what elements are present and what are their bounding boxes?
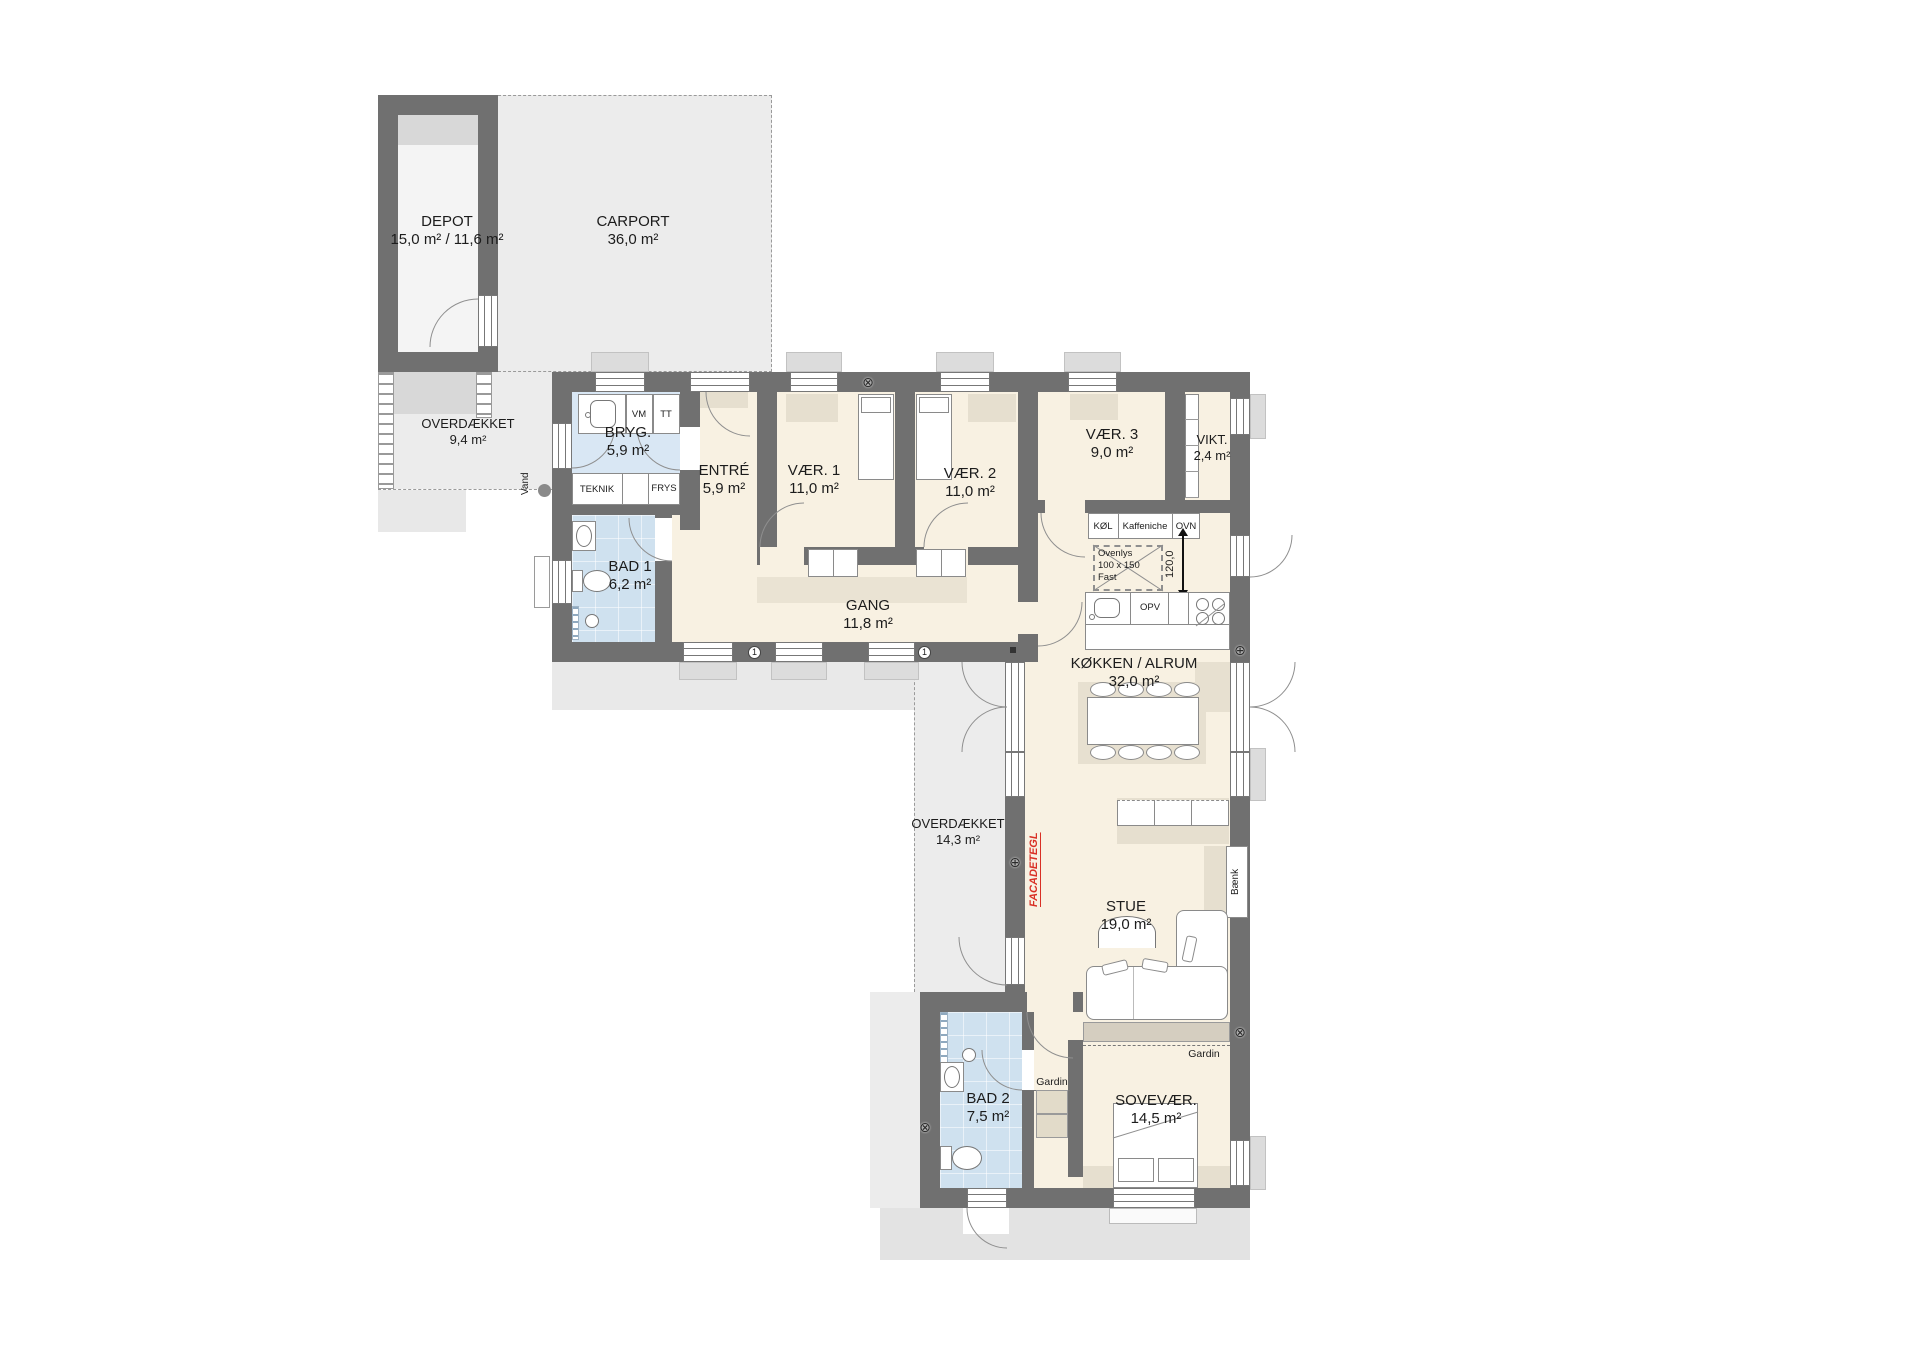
bad1-window-ledge: [534, 556, 550, 608]
overdaekket-w-name: OVERDÆKKET: [911, 816, 1004, 832]
window-vikt-e: [1230, 398, 1250, 435]
bad2-name: BAD 2: [966, 1090, 1009, 1108]
pergola-post-mid: [476, 372, 492, 418]
bryg-sink-tap: [585, 412, 591, 418]
vaer3-area: 9,0 m²: [1086, 444, 1139, 462]
koekken-name: KØKKEN / ALRUM: [1071, 655, 1198, 673]
bad2-door-arc: [982, 1050, 1022, 1090]
window-vaer2-n: [940, 372, 990, 392]
wall-bad2-west: [920, 992, 940, 1208]
sidelight-w: [1005, 752, 1025, 797]
carport-name: CARPORT: [596, 213, 669, 231]
depot-label: DEPOT 15,0 m² / 11,6 m²: [390, 213, 503, 249]
skylight-line3: Fast: [1098, 572, 1140, 584]
nook-wardrobe-2: [1036, 1114, 1068, 1138]
skylight-line1: Ovenlys: [1098, 548, 1140, 560]
window-sove-e: [1230, 1140, 1250, 1186]
depot-name: DEPOT: [390, 213, 503, 231]
facadetegl-label: FACADETEGL: [1028, 828, 1040, 912]
kaffeniche-label: Kaffeniche: [1123, 521, 1168, 532]
entre-label: ENTRÉ 5,9 m²: [699, 462, 750, 498]
depot-door-arc: [430, 299, 478, 347]
vaer3-label: VÆR. 3 9,0 m²: [1086, 426, 1139, 462]
bad1-basin: [576, 525, 592, 547]
wall-gang-koekken: [1018, 560, 1038, 602]
koekken-label: KØKKEN / ALRUM 32,0 m²: [1071, 655, 1198, 691]
cab-div-1: [1118, 513, 1119, 539]
bad2-area: 7,5 m²: [966, 1108, 1009, 1126]
entre-name: ENTRÉ: [699, 462, 750, 480]
koekken-area: 32,0 m²: [1071, 673, 1198, 691]
kitchen-sink: [1094, 598, 1120, 618]
stue-name: STUE: [1101, 898, 1152, 916]
wall-west: [552, 372, 572, 662]
stove-line: [1196, 604, 1226, 630]
gang-label: GANG 11,8 m²: [843, 597, 893, 633]
vent-symbol-north: ⊗: [862, 375, 874, 389]
window-well: [1109, 1208, 1197, 1224]
overdaekket-nw-band: [394, 372, 476, 414]
bad2-toilet-tank: [940, 1146, 952, 1170]
window-sove-s: [1113, 1188, 1195, 1208]
sideboard-d1: [1154, 800, 1155, 826]
dining-table: [1087, 697, 1199, 745]
island-v3: [1188, 592, 1189, 624]
overdaekket-nw-paving: [378, 490, 466, 532]
sove-label: SOVEVÆR. 14,5 m²: [1115, 1092, 1197, 1128]
carport-label: CARPORT 36,0 m²: [596, 213, 669, 249]
vaer1-pillow: [861, 397, 891, 413]
vaer1-label: VÆR. 1 11,0 m²: [788, 462, 841, 498]
dim-label: 120,0: [1164, 536, 1176, 592]
bryg-side-door: [552, 423, 572, 469]
bad1-toilet-bowl: [583, 570, 611, 592]
bad1-name: BAD 1: [608, 558, 651, 576]
gap-stue-nook-door: [1027, 992, 1073, 1012]
tt-label: TT: [660, 409, 672, 420]
chair-b1: [1090, 745, 1116, 760]
sideboard: [1117, 800, 1229, 826]
overdaekket-w-area-text: 14,3 m²: [911, 832, 1004, 848]
vand-label: Vand: [520, 462, 531, 506]
french-doors-w: [1005, 662, 1025, 752]
frys-label: FRYS: [651, 483, 676, 494]
overdaekket-nw-label: OVERDÆKKET 9,4 m²: [421, 416, 514, 448]
island-v1: [1130, 592, 1131, 624]
skylight-line2: 100 x 150: [1098, 560, 1140, 572]
sill-s2: [771, 662, 827, 680]
french-w-upper-arc: [962, 662, 1007, 707]
sove-pillow-1: [1118, 1158, 1154, 1182]
wall-vaer3-vikt: [1165, 392, 1185, 500]
sove-divider-cabinet: [1083, 1022, 1230, 1042]
vaer2-rug: [968, 394, 1016, 422]
bryg-name: BRYG.: [605, 424, 651, 442]
overdaekket-nw-area-text: 9,4 m²: [421, 432, 514, 448]
chair-b2: [1118, 745, 1144, 760]
sill-n4: [1064, 352, 1121, 372]
sideboard-d2: [1191, 800, 1192, 826]
dim-line: [1182, 534, 1184, 592]
stue-bench-band: [1204, 846, 1228, 918]
vikt-label: VIKT. 2,4 m²: [1194, 432, 1231, 464]
frys-divider: [648, 473, 649, 505]
gardin-label-sove: Gardin: [1188, 1048, 1220, 1060]
stue-terrace-door: [1005, 937, 1025, 985]
french-e-lower-arc: [1250, 707, 1295, 752]
window-gang-s1: [683, 642, 733, 662]
french-w-lower-arc: [962, 707, 1007, 752]
vaer2-area: 11,0 m²: [944, 483, 997, 501]
vikt-area: 2,4 m²: [1194, 448, 1231, 464]
bad1-label: BAD 1 6,2 m²: [608, 558, 651, 594]
depot-door-frame: [478, 295, 498, 347]
sofa-seam: [1133, 967, 1134, 1019]
sill-n2: [786, 352, 842, 372]
skylight-text: Ovenlys 100 x 150 Fast: [1098, 548, 1140, 584]
window-koekken-e: [1230, 752, 1250, 797]
vaer2-pillow: [919, 397, 949, 413]
vaer2-label: VÆR. 2 11,0 m²: [944, 465, 997, 501]
stue-label: STUE 19,0 m²: [1101, 898, 1152, 934]
sill-n1: [591, 352, 649, 372]
sove-pillow-2: [1158, 1158, 1194, 1182]
stue-terrace-door-arc: [959, 937, 1007, 985]
wall-vaer1-vaer2: [895, 372, 915, 547]
koekken-gang-door-arc: [1038, 602, 1082, 646]
island-v2: [1168, 592, 1169, 624]
teknik-divider: [622, 473, 623, 505]
bad2-ext-door-arc: [967, 1208, 1007, 1248]
gang-closet-1-div: [833, 549, 834, 577]
gap-vaer3-door: [1045, 500, 1085, 513]
vent-symbol-bad2: ⊗: [919, 1120, 931, 1134]
wall-end-dot: [1010, 647, 1016, 653]
window-gang-s3: [868, 642, 915, 662]
gang-closet-2-div: [941, 549, 942, 577]
vaer3-name: VÆR. 3: [1086, 426, 1139, 444]
window-bryg-n: [595, 372, 645, 392]
bad1-toilet-tank: [572, 570, 583, 592]
sove-curtain-line: [1083, 1045, 1230, 1046]
vent-symbol-stue: ⊗: [1234, 1025, 1246, 1039]
floor-plan: DEPOT 15,0 m² / 11,6 m² CARPORT 36,0 m² …: [0, 0, 1920, 1357]
bad1-shower-strip: [572, 606, 579, 640]
sill-n3: [936, 352, 994, 372]
stue-nook-door-arc: [1027, 1012, 1073, 1058]
front-door-arc: [706, 392, 750, 436]
overdaekket-w-label: OVERDÆKKET 14,3 m²: [911, 816, 1004, 848]
vaer3-rug: [1070, 394, 1118, 420]
vaer3-door-arc: [1041, 513, 1085, 557]
gap-koekken-door: [1018, 602, 1038, 634]
dim-arrow-top: [1178, 528, 1188, 536]
wall-sove-west: [1068, 1040, 1083, 1177]
baenk-label: Bænk: [1230, 854, 1241, 910]
vaer1-area: 11,0 m²: [788, 480, 841, 498]
bad2-label: BAD 2 7,5 m²: [966, 1090, 1009, 1126]
bryg-label: BRYG. 5,9 m²: [605, 424, 651, 460]
wall-mark-1a: 1: [748, 646, 761, 659]
paving-west-lowerwing: [870, 992, 920, 1208]
carport-area: 36,0 m²: [596, 231, 669, 249]
pergola-post-left: [378, 372, 394, 489]
wall-gang-koekken2: [1018, 634, 1038, 662]
vm-label: VM: [632, 409, 646, 420]
vaer1-rug: [786, 394, 838, 422]
wall-mark-1b: 1: [918, 646, 931, 659]
chair-b3: [1146, 745, 1172, 760]
french-doors-e: [1230, 662, 1250, 752]
vaer2-name: VÆR. 2: [944, 465, 997, 483]
sill-e1: [1250, 394, 1266, 439]
chair-b4: [1174, 745, 1200, 760]
teknik-label: TEKNIK: [580, 484, 614, 495]
sove-name: SOVEVÆR.: [1115, 1092, 1197, 1110]
sill-e2: [1250, 748, 1266, 801]
front-door-frame: [690, 372, 750, 392]
bad2-ext-door: [967, 1188, 1007, 1208]
window-bad1-w: [552, 560, 572, 604]
bad2-toilet-bowl: [952, 1146, 982, 1170]
entre-area: 5,9 m²: [699, 480, 750, 498]
vaer1-name: VÆR. 1: [788, 462, 841, 480]
bad2-drain: [962, 1048, 976, 1062]
overdaekket-nw-name: OVERDÆKKET: [421, 416, 514, 432]
wall-vaer2-vaer3: [1018, 372, 1038, 560]
sill-e3: [1250, 1136, 1266, 1190]
window-vaer3-n: [1068, 372, 1117, 392]
gang-name: GANG: [843, 597, 893, 615]
outlet-symbol-east: ⊕: [1234, 643, 1246, 657]
bad1-area: 6,2 m²: [608, 576, 651, 594]
sill-s3: [864, 662, 919, 680]
gap-vaer1-door: [760, 547, 804, 565]
sove-area: 14,5 m²: [1115, 1110, 1197, 1128]
koekken-east-door-arc: [1250, 535, 1292, 577]
gardin-label-nook: Gardin: [1036, 1076, 1068, 1088]
bad1-door-arc: [629, 518, 672, 561]
nook-wardrobe-1: [1036, 1090, 1068, 1114]
koel-label: KØL: [1093, 521, 1112, 532]
bad2-basin: [944, 1066, 960, 1088]
depot-shelf: [398, 115, 478, 145]
french-e-upper-arc: [1250, 662, 1295, 707]
opv-label: OPV: [1140, 602, 1160, 613]
vikt-name: VIKT.: [1194, 432, 1231, 448]
window-vaer1-n: [790, 372, 838, 392]
gang-area: 11,8 m²: [843, 615, 893, 633]
sill-s1: [679, 662, 737, 680]
koekken-door-e: [1230, 535, 1250, 577]
wall-mark-1a-text: 1: [752, 647, 757, 657]
vaer2-door-arc: [924, 503, 968, 547]
bryg-area: 5,9 m²: [605, 442, 651, 460]
vand-dot: [538, 484, 551, 497]
stue-area: 19,0 m²: [1101, 916, 1152, 934]
vaer1-door-arc: [760, 503, 804, 547]
window-gang-s2: [775, 642, 823, 662]
kitchen-tap: [1089, 614, 1095, 620]
depot-area: 15,0 m² / 11,6 m²: [390, 231, 503, 249]
door-threshold-east: [1195, 662, 1230, 712]
bad1-drain: [585, 614, 599, 628]
outlet-symbol-west: ⊕: [1009, 855, 1021, 869]
wall-mark-1b-text: 1: [922, 647, 927, 657]
gap-bryg-door: [680, 427, 700, 470]
